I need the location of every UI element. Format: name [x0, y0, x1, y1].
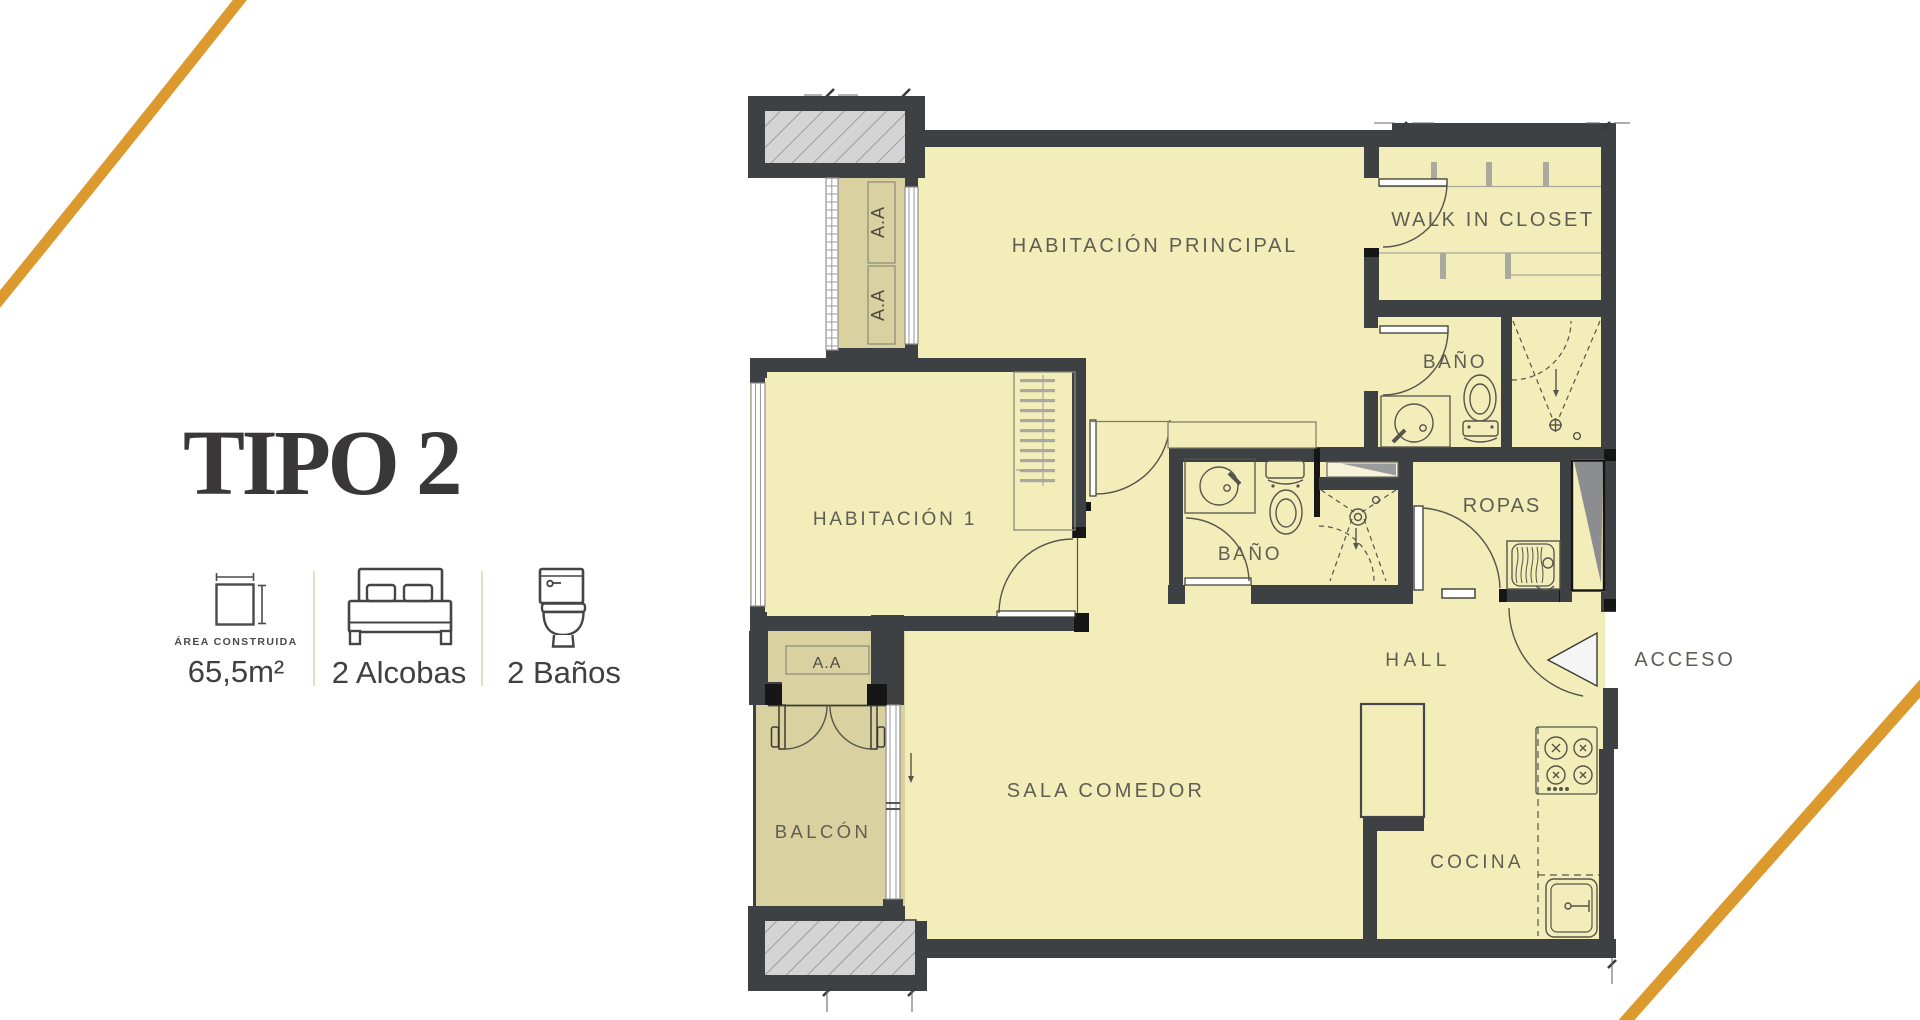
svg-text:ACCESO: ACCESO [1634, 649, 1735, 671]
svg-text:HABITACIÓN PRINCIPAL: HABITACIÓN PRINCIPAL [1012, 234, 1298, 257]
svg-text:BAÑO: BAÑO [1423, 351, 1487, 373]
svg-text:A.A: A.A [868, 289, 888, 321]
svg-text:BALCÓN: BALCÓN [775, 821, 871, 842]
svg-text:ÁREA CONSTRUIDA: ÁREA CONSTRUIDA [174, 635, 297, 648]
svg-text:65,5m²: 65,5m² [188, 654, 284, 689]
svg-text:BAÑO: BAÑO [1218, 543, 1282, 565]
svg-text:2 Alcobas: 2 Alcobas [332, 655, 466, 690]
svg-text:SALA COMEDOR: SALA COMEDOR [1007, 780, 1205, 802]
svg-text:HALL: HALL [1385, 650, 1451, 671]
svg-text:ROPAS: ROPAS [1463, 495, 1542, 517]
svg-text:A.A: A.A [868, 206, 888, 238]
svg-text:A.A: A.A [813, 655, 842, 672]
svg-text:2 Baños: 2 Baños [507, 655, 621, 690]
svg-text:TIPO 2: TIPO 2 [183, 412, 459, 515]
svg-text:COCINA: COCINA [1430, 852, 1524, 873]
svg-text:WALK IN CLOSET: WALK IN CLOSET [1391, 209, 1594, 231]
svg-text:HABITACIÓN 1: HABITACIÓN 1 [813, 508, 977, 530]
